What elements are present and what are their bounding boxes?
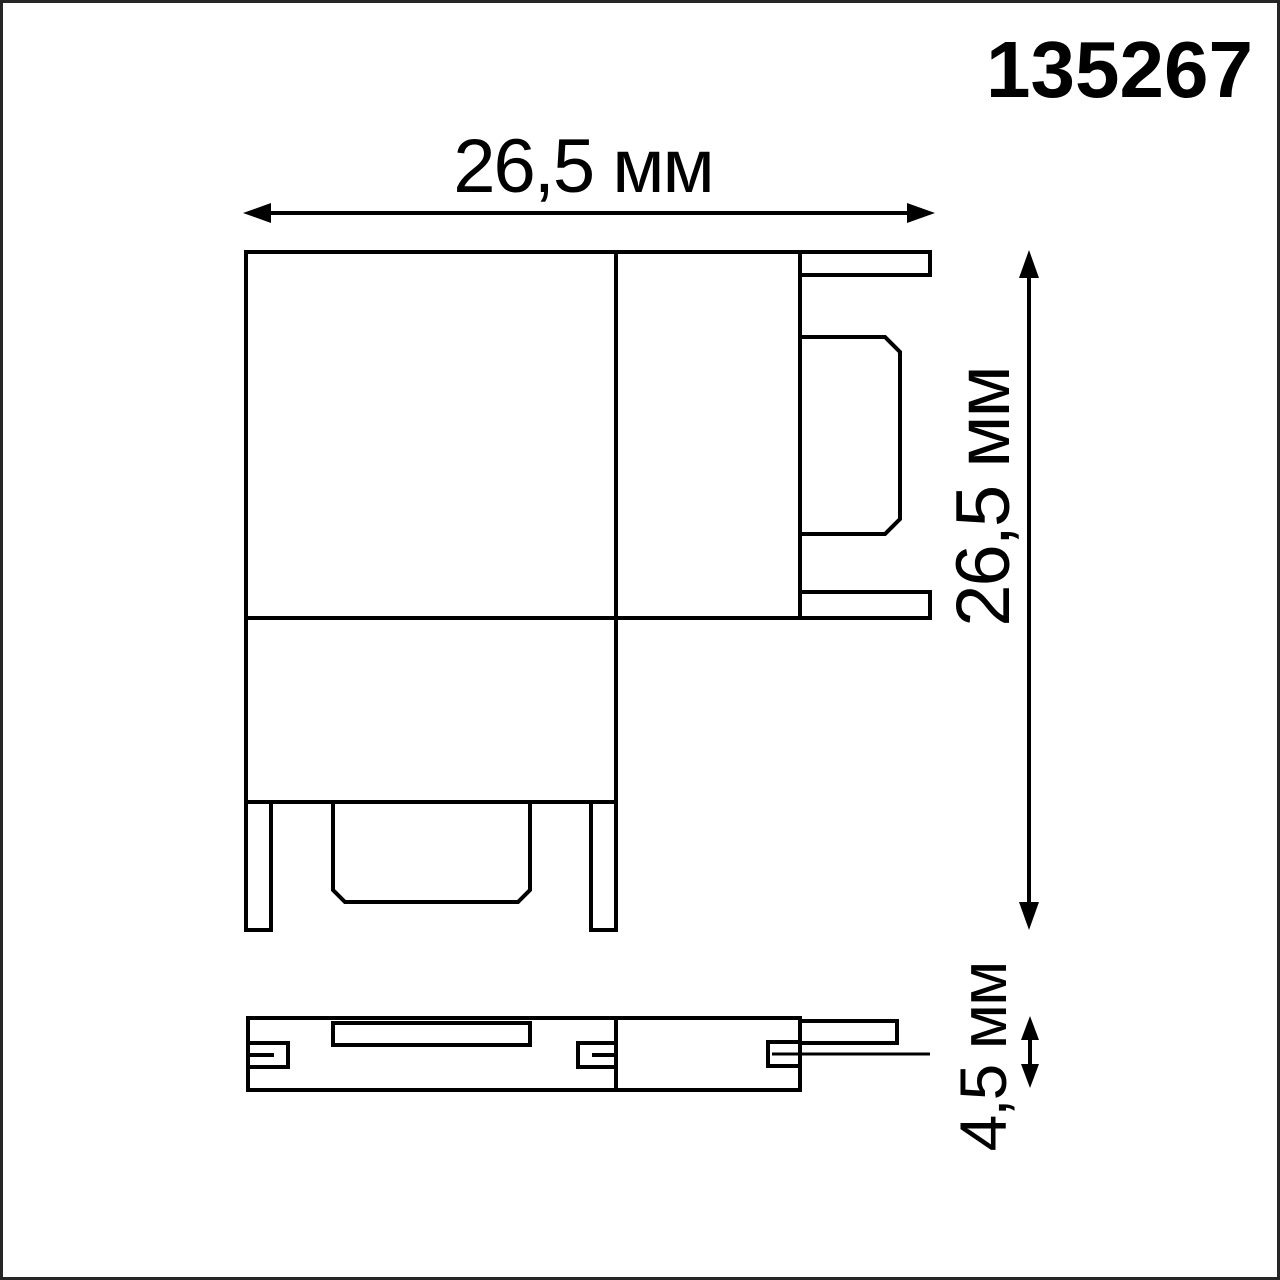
right-plug: [800, 337, 900, 534]
thickness-dimension-arrow: [1021, 1016, 1039, 1088]
bottom-right-leg: [591, 802, 616, 930]
right-bottom-tab: [800, 592, 930, 618]
arrowhead-left: [243, 203, 271, 223]
side-view-drawing: [248, 1018, 930, 1090]
drawing-canvas: 135267 26,5 мм 26,5 мм 4,5 мм: [0, 0, 1280, 1280]
connector-upper-body-outline: [246, 252, 800, 618]
arrowhead-up: [1021, 1016, 1039, 1040]
side-right-tab: [800, 1021, 897, 1043]
thickness-dimension-label: 4,5 мм: [950, 963, 1016, 1152]
width-dimension-label: 26,5 мм: [453, 129, 713, 205]
arrowhead-right: [907, 203, 935, 223]
product-number: 135267: [986, 30, 1253, 110]
arrowhead-down: [1019, 902, 1039, 930]
bottom-left-leg: [246, 802, 271, 930]
side-body-outline: [248, 1018, 800, 1090]
arrowhead-up: [1019, 250, 1039, 278]
side-top-slot: [333, 1023, 530, 1045]
right-top-tab: [800, 252, 930, 275]
height-dimension-label: 26,5 мм: [946, 367, 1022, 627]
top-view-drawing: [246, 252, 930, 930]
connector-lower-body-outline: [246, 618, 616, 802]
bottom-plug: [333, 802, 530, 902]
arrowhead-down: [1021, 1064, 1039, 1088]
